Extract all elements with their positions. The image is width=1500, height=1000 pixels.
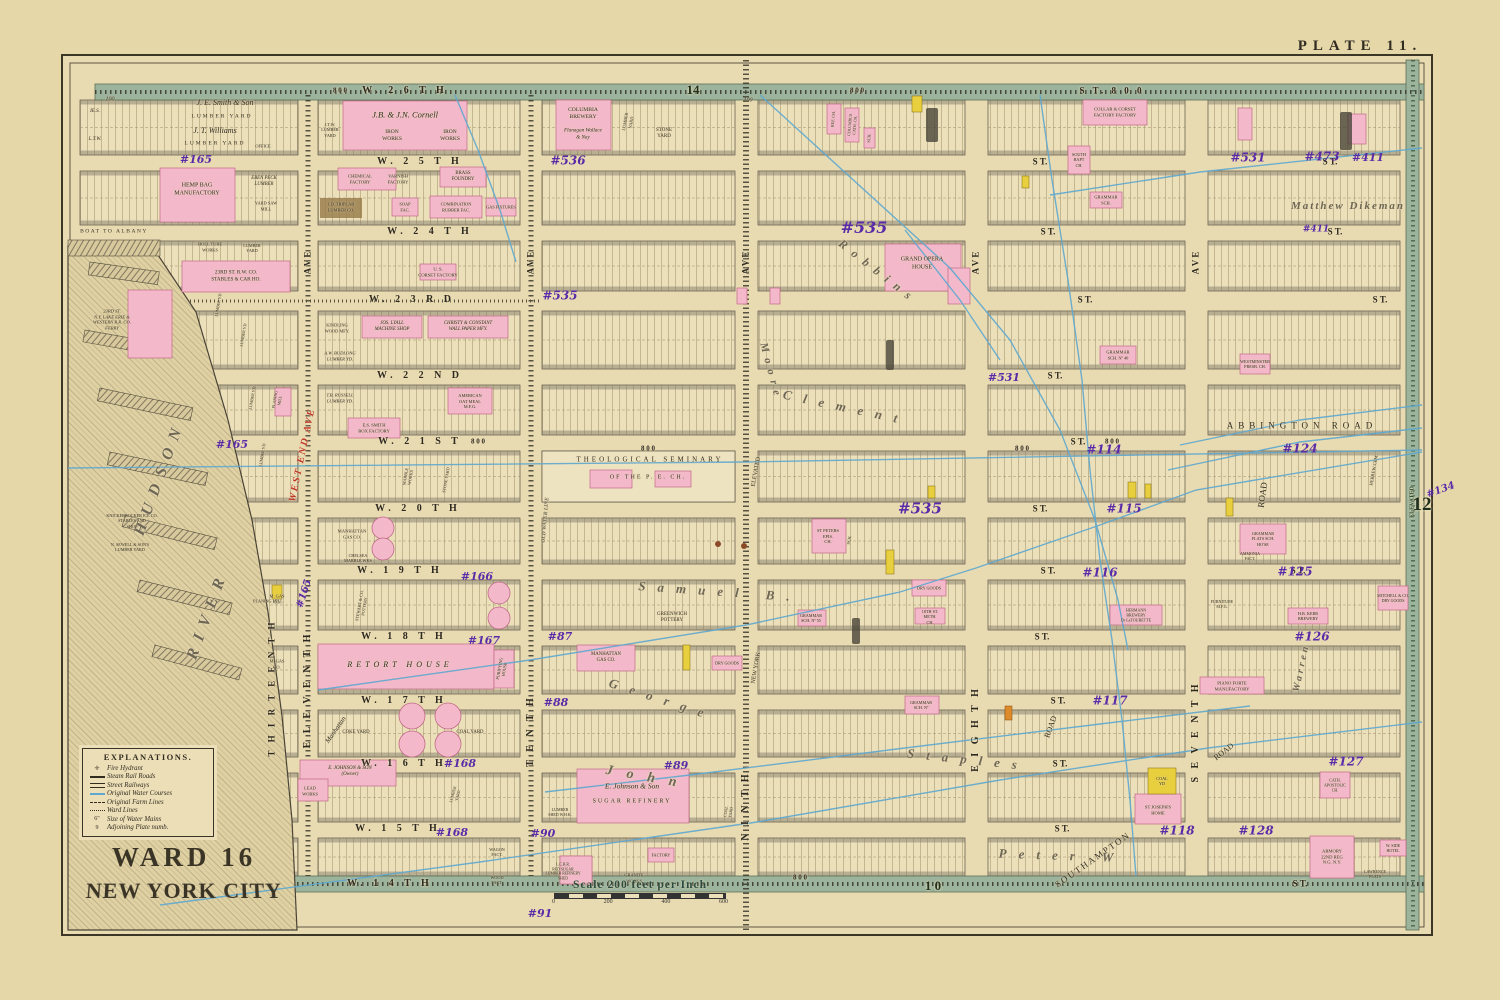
map-label: STONE YARD — [441, 467, 451, 493]
map-label: HEBREW CEM. — [1368, 454, 1379, 486]
map-label: M. GAS CO. — [270, 594, 285, 605]
map-label: IRON WORKS — [440, 129, 460, 143]
map-label: #535 — [841, 218, 888, 238]
map-label: #168 — [444, 757, 476, 771]
map-label: W. 2 3 R D — [369, 294, 455, 307]
map-label: JOS. LYALL MACHINE SHOP — [375, 321, 410, 333]
map-label: LUMBER YARD — [621, 112, 635, 132]
map-label: #118 — [1159, 824, 1194, 839]
scale-text: Scale 200 feet per Inch — [540, 879, 740, 891]
scale-tick: 600 — [719, 899, 728, 905]
map-label: #91 — [528, 907, 553, 921]
legend-title: EXPLANATIONS. — [87, 752, 209, 762]
map-label: MANHATTAN GAS CO. — [591, 652, 621, 664]
legend-item: Original Farm Lines — [87, 798, 209, 807]
map-label: OLD WATER LINE — [541, 497, 552, 543]
map-label: S T. — [1048, 370, 1063, 381]
map-label: W. 1 5 T H — [355, 823, 441, 836]
map-label: H.B. KERR BREWERY — [1298, 611, 1318, 622]
map-label: T.B. RUSSELL LUMBER YD. — [326, 392, 353, 403]
map-label: S T. — [1078, 294, 1093, 305]
map-label: M. GAS CO. — [270, 659, 285, 670]
map-label: Staples — [906, 746, 1029, 775]
city-title: NEW YORK CITY — [61, 878, 307, 904]
map-label: 8 0 0 — [471, 438, 485, 447]
map-label: #536 — [550, 154, 585, 169]
map-label: ROAD — [1042, 715, 1059, 740]
map-label: #411 — [1303, 224, 1329, 235]
map-label: A V E — [1190, 252, 1201, 275]
legend-item: Street Railways — [87, 781, 209, 790]
map-label: MITCHELL & CO. DRY GOODS — [1377, 593, 1409, 603]
map-label: CHRISTY & CONSTANT WALL PAPER MFY. — [444, 321, 492, 333]
map-label: #531 — [1230, 151, 1265, 166]
map-label: 14 — [687, 82, 700, 98]
map-label: S T. — [1033, 156, 1048, 167]
map-label: CHELSEA MARBLE WKS — [344, 553, 372, 564]
legend-symbol-water-icon — [87, 793, 107, 795]
map-label: LEAD WORKS — [302, 786, 318, 797]
map-label: #165 — [295, 578, 316, 610]
map-label: J.B. & J.N. Cornell — [372, 110, 438, 121]
map-label: #168 — [436, 826, 468, 840]
map-label: Moore — [756, 341, 785, 402]
legend-item: 6"Size of Water Mains — [87, 815, 209, 824]
map-label: S T. — [1373, 294, 1388, 305]
map-label: S T. — [1055, 823, 1070, 834]
map-label: IE.S. — [90, 109, 100, 115]
legend-label: Original Farm Lines — [107, 799, 164, 806]
legend-rows: ✛Fire HydrantSteam Rail RoadsStreet Rail… — [87, 764, 209, 832]
map-label: W. 1 4 T H — [347, 878, 433, 891]
map-label: GRAND OPERA HOUSE — [901, 257, 944, 272]
map-label: GRAMMAR SCH. Nº 55 — [800, 613, 822, 624]
map-label: #115 — [1106, 502, 1141, 517]
map-label: ROAD — [1256, 482, 1271, 509]
map-label: U. S. CORSET FACTORY — [418, 266, 457, 277]
map-label: REF. CH. — [830, 111, 837, 128]
map-label: J.D. TRIPLAR LUMBER CO. — [328, 202, 355, 213]
map-label: W. 2 0 T H — [375, 503, 461, 516]
map-label: S T. — [1041, 565, 1056, 576]
legend-symbol-ward-icon — [87, 810, 107, 811]
map-label: SUGAR REFINERY — [593, 798, 672, 806]
map-label: KNICKERBOCKER ICE CO. STABLES AND SHOP — [106, 513, 157, 529]
map-label: S T. — [1033, 503, 1048, 514]
legend-item: ✛Fire Hydrant — [87, 764, 209, 773]
map-label: LUMBER YARD — [448, 786, 462, 805]
legend-label: Fire Hydrant — [107, 765, 143, 772]
map-label: #128 — [1238, 824, 1273, 839]
map-label: #127 — [1328, 755, 1363, 770]
map-label: S T. 8 0 0 — [1080, 85, 1145, 96]
map-label: SOUTH BAPT CH. — [1072, 152, 1086, 168]
map-label: LUMBER YARD — [243, 243, 260, 254]
map-label: LUMBER YD — [239, 323, 248, 347]
map-label: FACTORY — [652, 852, 671, 857]
map-label: E.S. SMITH BOX FACTORY — [358, 422, 390, 433]
map-label: RIVER — [183, 567, 234, 662]
map-label: J. T. Williams — [193, 126, 236, 136]
legend-label: Adjoining Plate numb. — [107, 824, 168, 831]
map-label: VARNISH FACTORY — [388, 173, 409, 184]
map-label: #165 — [216, 438, 248, 452]
map-label: George — [607, 675, 718, 725]
map-label: L.T.W. — [89, 137, 102, 143]
map-label: LUMBER YARD — [191, 114, 252, 121]
map-label: OFFICE — [255, 143, 270, 149]
map-label: WESTMINSTER PRESB. CH. — [1240, 359, 1270, 370]
map-label: S T. — [1053, 758, 1068, 769]
map-label: SCH. — [846, 535, 853, 545]
map-label: W. 1 9 T H — [357, 565, 443, 578]
map-label: NEW YORK — [751, 652, 764, 685]
map-label: COAL YARD — [457, 730, 484, 736]
map-label: #535 — [542, 289, 577, 304]
map-label: S E V E N T H — [1190, 681, 1203, 782]
atlas-map: W. 2 6 T H8 0 08 0 014S T. 8 0 0W. 2 5 T… — [0, 0, 1500, 1000]
legend-symbol-hydrant-icon: ✛ — [87, 765, 107, 772]
map-label: S T. — [1035, 631, 1050, 642]
scale-box: Scale 200 feet per Inch 0200400600 — [540, 879, 740, 905]
map-label: WAGON FACT. — [489, 847, 505, 858]
map-label: GREENWICH POTTERY — [657, 612, 687, 625]
map-label: T H I R T E E N T H — [266, 620, 277, 757]
map-label: LUMBER YD — [248, 386, 257, 410]
map-label: #473 — [1304, 150, 1339, 165]
map-label: #116 — [1082, 566, 1117, 581]
map-label: PLANING MILL — [271, 390, 284, 409]
map-label: Peter W — [998, 846, 1125, 867]
map-label: STEWART & CO. POTTERY — [354, 590, 370, 623]
map-label: THEOLOGICAL SEMINARY — [576, 456, 723, 465]
legend-symbol-text-icon: 6" — [87, 816, 107, 822]
map-label: #114 — [1086, 443, 1121, 458]
map-label: LUMBER YD — [258, 443, 267, 467]
map-label: COAL YD — [1156, 776, 1167, 787]
map-label: GRAMMAR SCH. — [1094, 195, 1117, 206]
map-label: A V E — [302, 252, 313, 275]
map-label: GAS FIXTURES — [486, 204, 515, 209]
map-label: N. SEWELL & SON'S LUMBER YARD — [111, 542, 149, 553]
map-label: W. 1 8 T H — [361, 631, 447, 644]
map-label: E L E V E N T H — [302, 632, 315, 749]
map-label: BOAT TO ALBANY — [80, 229, 148, 236]
map-label: 100 — [744, 97, 753, 105]
legend-item: Steam Rail Roads — [87, 773, 209, 782]
map-label: DRY GOODS — [715, 660, 739, 665]
map-label: 100 — [106, 96, 115, 104]
map-label: W. 1 7 T H — [361, 695, 447, 708]
map-label: W. 2 6 T H — [362, 85, 448, 98]
legend-symbol-text-icon: 9 — [87, 825, 107, 831]
map-label: Samuel B. — [638, 578, 802, 606]
map-label: W. 2 5 T H — [377, 156, 463, 169]
map-label: AMERICAN OAT MEAL M.F.G. — [458, 393, 481, 410]
map-label: HEMP BAG MANUFACTORY — [174, 183, 219, 198]
map-label: #87 — [548, 630, 573, 644]
map-label: T E N T H — [525, 695, 538, 766]
map-label: MARBLE WORKS — [401, 467, 414, 486]
map-label: #88 — [544, 696, 569, 710]
map-label: ARMORY 22ND REG N.G. N.Y. — [1321, 848, 1343, 865]
map-label: Flanagan Wallace & Nay — [564, 128, 602, 141]
legend-symbol-line-icon — [87, 776, 107, 778]
map-label: #125 — [1277, 565, 1312, 580]
map-label: COKE YARD — [342, 730, 369, 736]
map-label: ABBINGTON ROAD — [1227, 420, 1378, 431]
map-label: S T. — [1041, 226, 1056, 237]
map-label: KINDLING WOOD MFY. — [325, 323, 350, 334]
map-label: W. 2 4 T H — [387, 226, 473, 239]
map-label: GRAMMAR FLATS SCH. HO'SE — [1252, 531, 1275, 547]
map-label: Warren — [1291, 643, 1313, 693]
map-label: #126 — [1294, 630, 1329, 645]
map-label: A V E — [525, 252, 536, 275]
map-label: RETORT HOUSE — [347, 660, 452, 670]
plate-title: PLATE 11. — [1260, 38, 1460, 55]
legend-label: Original Water Courses — [107, 790, 172, 797]
map-label: 23RD ST. N.Y. LAKE ERIE & WESTERN R.R. C… — [93, 309, 131, 332]
map-label: OF THE P. E. CH. — [610, 474, 686, 482]
map-label: FURNITURE M.F.G. — [1211, 599, 1233, 609]
map-label: 8 0 0 — [641, 445, 655, 454]
map-label: ST PETERS EPIS. CH. — [817, 528, 839, 545]
map-label: S T. — [1328, 226, 1343, 237]
map-label: YARD SAW MILL — [255, 201, 277, 212]
map-label: #124 — [1282, 442, 1317, 457]
map-label: 8 0 0 — [333, 87, 347, 96]
map-label: SCH. — [866, 133, 872, 143]
legend-label: Ward Lines — [107, 807, 138, 814]
map-label: COMBINATION RUBBER FAC. — [441, 202, 472, 213]
map-label: COAL YARD — [722, 806, 734, 818]
map-label: EBEN PECK LUMBER — [251, 176, 276, 188]
map-label: LUMBER SHED W.H.K. — [548, 807, 572, 817]
legend-box: EXPLANATIONS. ✛Fire HydrantSteam Rail Ro… — [82, 748, 214, 837]
map-label: Matthew Dikeman — [1291, 200, 1405, 214]
map-label: J.T.W. LUMBER YARD — [321, 122, 338, 138]
map-label: LUMBER YD — [214, 293, 223, 317]
map-label: J. E. Smith & Son — [197, 98, 254, 108]
map-label: #90 — [531, 827, 556, 841]
map-label: SOAP FAC. — [399, 202, 410, 213]
map-label: BRASS FOUNDRY — [452, 171, 475, 183]
map-label: #166 — [461, 570, 493, 584]
map-label: GRAMMAR SCH. Nº — [910, 700, 932, 711]
legend-label: Street Railways — [107, 782, 149, 789]
map-label: N I N T H — [740, 771, 753, 840]
map-label: HOLL TUBE WORKS — [198, 242, 222, 253]
map-label: ROAD — [1212, 741, 1236, 763]
map-label: #117 — [1092, 694, 1127, 709]
map-label: PIANO FORTE MANUFACTORY — [1215, 680, 1250, 691]
map-label: S T. — [1293, 878, 1308, 889]
map-label: W. SIDE HOTEL — [1386, 843, 1400, 853]
map-label: 18TH ST. METH. CH. — [922, 609, 938, 625]
scale-tick: 0 — [552, 899, 555, 905]
map-label: COLLAR & CORSET FACTORY FACTORY — [1094, 106, 1137, 117]
map-label: IRON WORKS — [382, 129, 402, 143]
scale-tick: 400 — [661, 899, 670, 905]
map-label: WEST END AVE — [287, 407, 319, 504]
ward-title: WARD 16 — [84, 842, 284, 873]
map-label: #531 — [988, 371, 1020, 385]
legend-label: Steam Rail Roads — [107, 773, 155, 780]
map-label: #89 — [664, 759, 689, 773]
map-label: STONE YARD — [656, 128, 672, 141]
map-label: 8 0 0 — [1015, 445, 1029, 454]
map-label: COLUMBIA BREWERY — [568, 107, 598, 121]
map-label: PURIFYING HOUSE — [495, 657, 509, 681]
map-label: S T. — [1051, 695, 1066, 706]
map-label: ELEVATED — [751, 457, 764, 488]
legend-item: 9Adjoining Plate numb. — [87, 824, 209, 833]
legend-item: Ward Lines — [87, 807, 209, 816]
map-label: 8 0 0 — [850, 87, 864, 96]
map-label: #165 — [180, 153, 212, 167]
map-label: 8 0 0 — [793, 874, 807, 883]
map-label: CATH. APOSTOLIC CH. — [1324, 778, 1346, 793]
map-label: GRAMMAR SCH. Nº 40 — [1106, 350, 1129, 361]
map-label: HERMANN BREWERY Dr LaTOURETTE — [1121, 608, 1151, 623]
map-label: A V E — [970, 252, 981, 275]
map-label: #167 — [468, 634, 500, 648]
map-label: #535 — [898, 500, 942, 519]
map-label: W. 2 2 N D — [377, 370, 463, 383]
map-label: #411 — [1352, 151, 1384, 165]
map-label: MANHATTAN GAS CO. — [338, 528, 367, 539]
map-label: S T. — [1071, 436, 1086, 447]
legend-label: Size of Water Mains — [107, 816, 161, 823]
map-label: Robbins — [835, 236, 920, 307]
map-label: A V E — [740, 252, 751, 275]
map-label: W. 2 1 S T — [378, 436, 462, 449]
map-label: COLUMBUS CATH. CH. — [846, 113, 858, 136]
adjoining-plate-right: 12 — [1413, 493, 1432, 517]
map-label: LAWRENCE FLATS — [1364, 869, 1386, 879]
legend-symbol-rail-icon — [87, 783, 107, 788]
legend-symbol-farm-icon — [87, 802, 107, 803]
scale-tick: 200 — [604, 899, 613, 905]
map-label: A.W. BUDLONG LUMBER YD. — [324, 350, 355, 361]
scale-ticks: 0200400600 — [552, 899, 728, 905]
legend-item: Original Water Courses — [87, 790, 209, 799]
map-label: WOOD FACT. — [490, 875, 503, 886]
map-label: CHEMICAL FACTORY — [348, 173, 372, 184]
map-label: AMMONIA FACT. — [1240, 551, 1260, 561]
map-label: E. JOHNSON & SON (Owner) — [328, 766, 372, 779]
map-label: LUMBER YARD — [184, 141, 245, 148]
map-label: 23RD ST. R.W. CO. STABLES & CAR HO. — [211, 270, 260, 283]
map-label: Clement — [781, 387, 910, 430]
map-label: DRY GOODS — [917, 585, 941, 590]
map-label: 1 0 — [925, 878, 941, 894]
map-label: ST JOSEPH'S HOME — [1145, 804, 1171, 815]
map-label: W. 1 6 T H — [361, 758, 447, 771]
